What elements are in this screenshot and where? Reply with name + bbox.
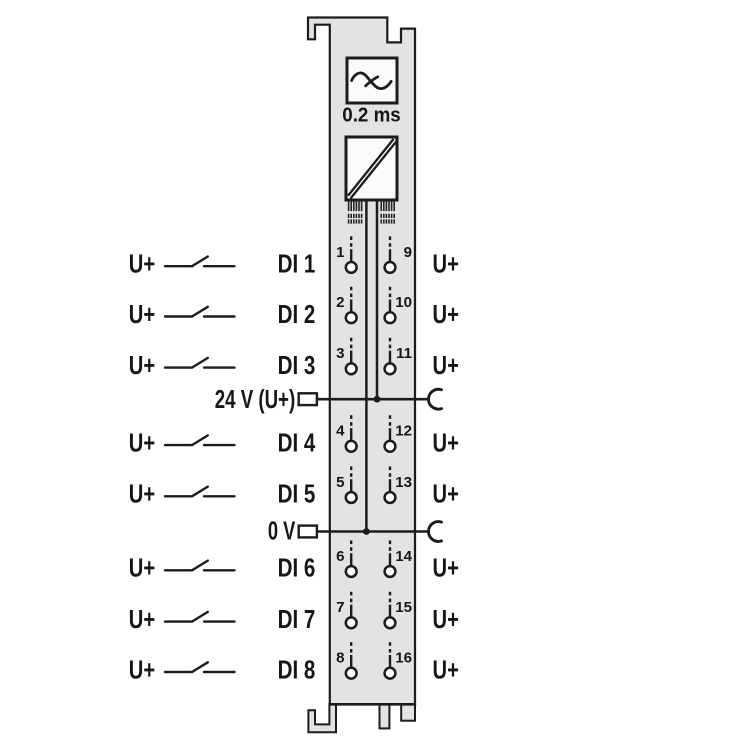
svg-text:DI 2: DI 2 (278, 301, 316, 330)
svg-text:0.2 ms: 0.2 ms (342, 104, 400, 127)
svg-text:9: 9 (404, 244, 412, 261)
svg-text:6: 6 (336, 548, 344, 565)
svg-text:U+: U+ (433, 428, 459, 457)
svg-text:7: 7 (336, 599, 344, 616)
svg-text:U+: U+ (433, 249, 459, 278)
svg-text:U+: U+ (433, 655, 459, 684)
svg-text:10: 10 (395, 294, 412, 311)
svg-text:U+: U+ (129, 428, 155, 457)
svg-text:U+: U+ (433, 479, 459, 508)
svg-text:12: 12 (395, 423, 412, 440)
svg-text:DI 3: DI 3 (278, 352, 316, 381)
svg-text:4: 4 (336, 423, 345, 440)
svg-text:DI 4: DI 4 (278, 429, 316, 458)
svg-text:16: 16 (395, 650, 412, 667)
svg-text:8: 8 (336, 650, 344, 667)
svg-text:DI 6: DI 6 (278, 554, 316, 583)
svg-text:DI 1: DI 1 (278, 250, 316, 279)
svg-text:15: 15 (395, 599, 412, 616)
svg-text:11: 11 (396, 345, 412, 362)
svg-text:14: 14 (395, 548, 412, 565)
svg-text:U+: U+ (129, 350, 155, 379)
svg-text:U+: U+ (433, 553, 459, 582)
svg-text:U+: U+ (129, 553, 155, 582)
svg-text:DI 7: DI 7 (278, 606, 316, 635)
svg-text:2: 2 (336, 294, 344, 311)
svg-text:DI 5: DI 5 (278, 480, 316, 509)
svg-text:24 V (U+): 24 V (U+) (215, 384, 295, 414)
svg-text:U+: U+ (433, 604, 459, 633)
svg-text:U+: U+ (433, 350, 459, 379)
svg-text:3: 3 (336, 345, 344, 362)
svg-text:U+: U+ (129, 479, 155, 508)
svg-text:0 V: 0 V (268, 516, 295, 545)
svg-text:DI 8: DI 8 (278, 656, 316, 685)
svg-text:13: 13 (395, 474, 412, 491)
svg-text:U+: U+ (129, 299, 155, 328)
svg-text:5: 5 (336, 474, 344, 491)
svg-text:1: 1 (336, 244, 344, 261)
svg-text:U+: U+ (129, 655, 155, 684)
svg-text:U+: U+ (129, 604, 155, 633)
svg-text:U+: U+ (129, 249, 155, 278)
svg-text:U+: U+ (433, 299, 459, 328)
